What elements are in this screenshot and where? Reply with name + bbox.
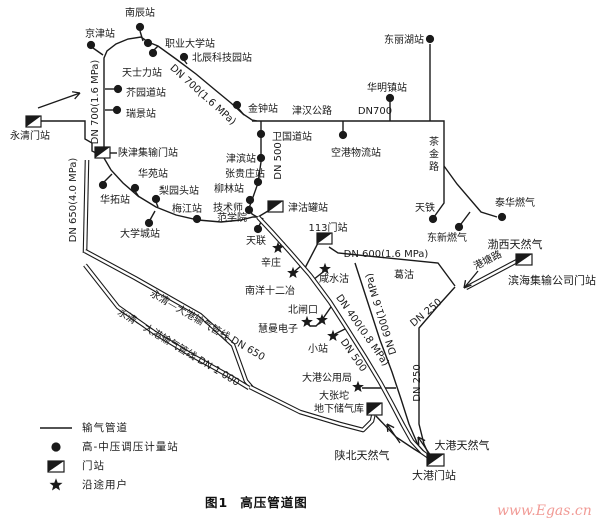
station-dot [180,53,188,61]
station-dot-symbol [38,440,74,454]
figure-number: 图1 [205,495,228,510]
map-label: 小站 [308,342,328,355]
shaanbei-gas-arrow-head [387,424,388,432]
pipeline-nanchen-stub [140,31,143,41]
map-label: DN 600(1.6 MPa) [344,249,429,260]
station-dot [429,215,437,223]
pipeline-chajin-branch [444,166,497,217]
pipeline-yongqing-dagang-dn650-inner [85,251,252,388]
station-dot [233,101,241,109]
map-label: 茶金路 [429,135,439,173]
user-star [327,330,339,341]
map-label: 津汉公路 [292,104,332,117]
pipeline-yongqing-dagang-dn650 [85,251,252,388]
map-label: DN 700(1.6 MPa) [90,60,101,145]
pipeline-gate113-stub [305,243,318,268]
map-label: DN700 [358,106,392,117]
station-dot [257,154,265,162]
map-label: 芥园道站 [126,86,166,99]
map-label: 永清—大港输气管线 DN 1 000 [115,305,242,388]
map-label: 北闸口 [288,303,318,316]
legend-label: 沿途用户 [82,477,128,492]
map-label: 慧曼电子 [258,322,298,335]
station-dot [498,213,506,221]
pipeline-jinzhong-stub [238,108,244,115]
map-label: 陕北天然气 [335,448,390,462]
map-label: 陕津集输门站 [118,146,178,159]
map-label: 大港公用局 [302,371,352,384]
map-label: 华拓站 [100,193,130,206]
legend-item: 门站 [38,456,179,475]
pipeline-figure: 南辰站京津站职业大学站北辰科技园站天士力站芥园道站瑞景站金钟站东丽湖站华明镇站津… [0,0,600,530]
map-label: 南洋十二冶 [245,284,295,297]
map-label: 永清—大港输气管线 DN 650 [148,287,268,364]
station-dot [426,35,434,43]
legend-label: 输气管道 [82,420,128,435]
watermark: www.Egas.cn [497,503,592,519]
user-star [352,381,364,392]
station-dot [87,41,95,49]
map-label: 京津站 [85,27,115,40]
map-label: 华明镇站 [367,81,407,94]
dagang-gas-arrow-head [418,437,419,445]
gate-station-symbol [38,459,74,473]
station-dot [99,181,107,189]
map-label: 天士力站 [122,66,162,79]
map-label: 葛沽 [394,268,414,281]
map-label: 津沽罐站 [288,201,328,214]
station-dot [257,130,265,138]
station-dot [131,184,139,192]
map-label: 范学院 [217,211,247,224]
map-label: 空港物流站 [331,146,381,159]
map-label: 113门站 [308,221,347,234]
user-star [319,263,331,274]
figure-title: 高压管道图 [240,495,308,510]
map-label: DN 250 [409,297,445,330]
map-label: 东新燃气 [427,231,467,244]
station-dot [339,131,347,139]
map-label: 梅江站 [172,202,202,215]
map-label: 天联 [246,235,266,247]
map-label: 天铁 [415,201,435,214]
map-label: 卫国道站 [272,130,312,143]
inflow-arrow-head [72,92,80,93]
station-dot [254,225,262,233]
map-label: 柳林站 [214,182,244,195]
legend-label: 高-中压调压计量站 [82,439,179,454]
legend-item: 沿途用户 [38,475,179,494]
legend-item: 高-中压调压计量站 [38,437,179,456]
map-label: 北辰科技园站 [192,51,252,64]
map-label: 职业大学站 [165,37,215,50]
pipeline-xiaozhan-stub [335,329,345,334]
map-label: 金钟站 [248,102,278,115]
station-dot [149,49,157,57]
map-label: 咸水沽 [319,272,349,285]
map-label: 张贵庄站 [225,167,265,180]
station-dot [114,85,122,93]
map-label: 泰华燃气 [495,196,535,209]
legend-label: 门站 [82,458,105,473]
station-dot [386,94,394,102]
map-label: 东丽湖站 [384,33,424,46]
pipeline-huatuo-stub [104,174,112,182]
map-label: 大港门站 [412,468,456,482]
map-label: 大张坨 [319,389,349,402]
map-label: 津滨站 [226,152,256,165]
pipeline-daxuecheng-stub [150,211,155,220]
map-label: 滨海集输公司门站 [508,273,596,287]
map-label: 渤西天然气 [488,237,543,251]
map-label: 瑞景站 [126,107,156,120]
map-label: 辛庄 [261,256,281,269]
user-star-symbol [38,477,74,493]
map-label: 大学城站 [120,227,160,240]
station-dot [455,223,463,231]
map-label: DN 250 [412,364,423,401]
pipeline-jingjin-stub [93,48,103,55]
station-dot [246,196,254,204]
map-label: DN 500 [273,142,284,179]
map-label: 地下储气库 [314,402,364,415]
map-label: 华苑站 [138,167,168,180]
figure-caption: 图1高压管道图 [205,492,308,511]
legend-item: 输气管道 [38,418,179,437]
map-label: 大港天然气 [435,438,490,452]
station-dot [145,219,153,227]
map-label: DN 700(1.6 MPa) [168,63,238,128]
pipeline-line-symbol [38,421,74,435]
station-dot [113,106,121,114]
pipeline-dongxin-stub [461,212,470,224]
station-dot [193,215,201,223]
map-label: 永清门站 [10,129,50,142]
legend: 输气管道 高-中压调压计量站 门站 沿途用户 [38,418,179,494]
map-label: DN 650(4.0 MPa) [68,158,79,243]
map-label: 南辰站 [125,6,155,19]
inflow-arrow [38,93,80,108]
station-dot [144,39,152,47]
station-dot [136,23,144,31]
map-label: 梨园头站 [159,184,199,197]
